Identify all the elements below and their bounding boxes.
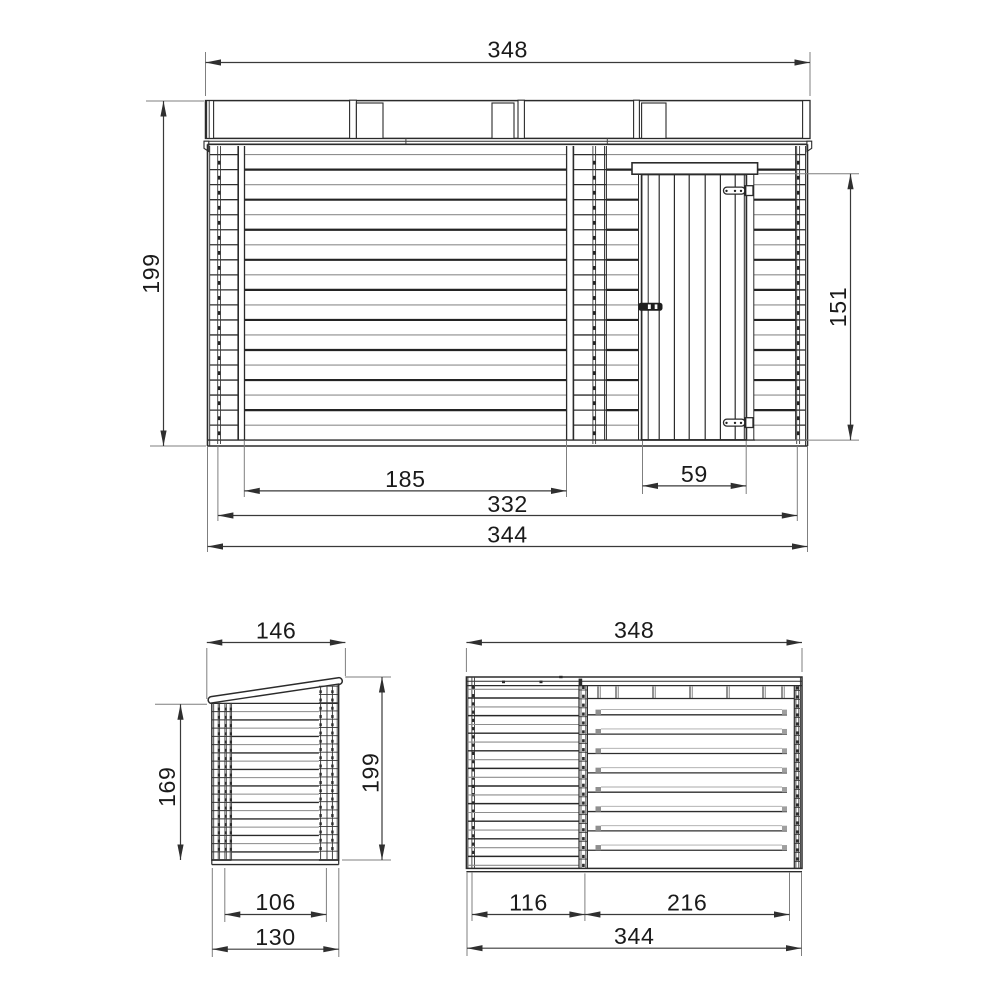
svg-text:106: 106	[255, 889, 296, 915]
svg-text:146: 146	[256, 617, 297, 643]
svg-text:185: 185	[385, 466, 426, 492]
svg-text:344: 344	[614, 923, 655, 949]
svg-text:348: 348	[614, 617, 655, 643]
svg-text:116: 116	[509, 890, 548, 916]
svg-text:344: 344	[487, 522, 528, 548]
svg-text:169: 169	[154, 767, 180, 808]
svg-text:130: 130	[255, 924, 296, 950]
svg-text:216: 216	[667, 890, 708, 916]
svg-text:332: 332	[487, 491, 528, 517]
svg-text:199: 199	[358, 753, 384, 794]
svg-text:348: 348	[488, 36, 529, 62]
svg-text:199: 199	[138, 253, 164, 294]
svg-text:59: 59	[681, 461, 708, 487]
svg-text:151: 151	[825, 287, 851, 328]
